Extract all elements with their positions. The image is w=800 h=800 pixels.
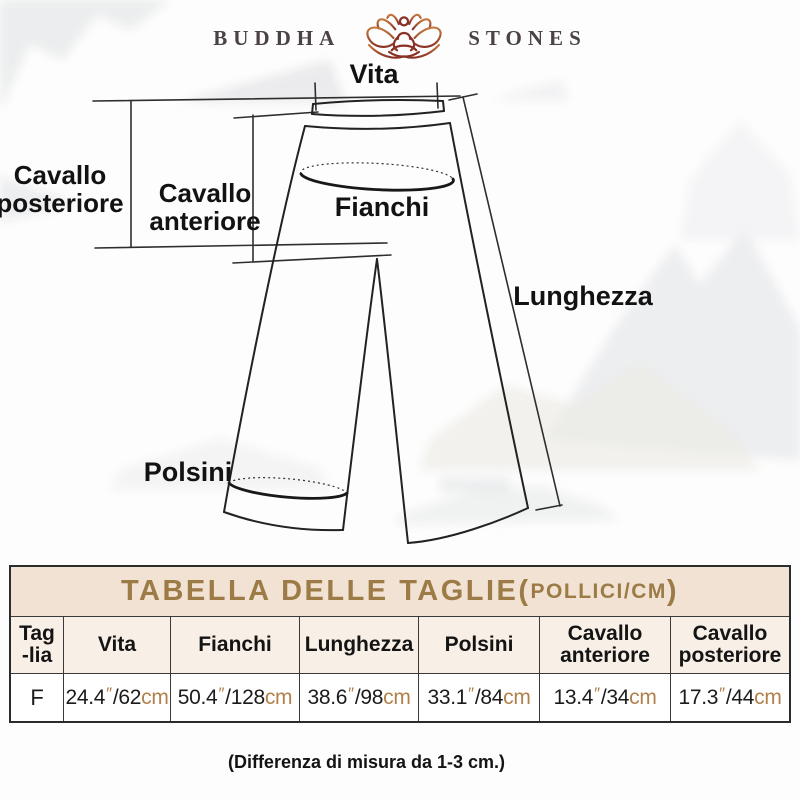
cm-unit: cm [503, 686, 530, 710]
cavallo-anteriore-label: Cavallo anteriore [130, 180, 280, 235]
size-table: TABELLA DELLE TAGLIE(POLLICI/CM) Tag -li… [9, 565, 791, 723]
measure-cell-fianchi: 50.4″/128cm [170, 674, 299, 721]
title-paren-open: ( [518, 575, 530, 608]
size-table-header-row: Tag -liaVitaFianchiLunghezzaPolsiniCaval… [11, 617, 789, 674]
cm-unit: cm [265, 686, 292, 710]
measure-cell-cavallo-posteriore: 17.3″/44cm [670, 674, 789, 721]
measure-cell-lunghezza: 38.6″/98cm [299, 674, 418, 721]
fianchi-label: Fianchi [322, 193, 442, 222]
inch-mark: ″ [106, 684, 112, 704]
size-table-unit-text: POLLICI/CM [531, 580, 667, 604]
measurement-difference-note: (Differenza di misura da 1-3 cm.) [0, 752, 733, 773]
column-header-lunghezza: Lunghezza [299, 617, 418, 673]
fianchi-ellipse-dotted [301, 163, 453, 179]
cm-unit: cm [383, 686, 410, 710]
inch-mark: ″ [719, 684, 725, 704]
column-header-cavallo-anteriore: Cavallo anteriore [539, 617, 670, 673]
size-table-title: TABELLA DELLE TAGLIE(POLLICI/CM) [11, 567, 789, 617]
cm-unit: cm [141, 686, 168, 710]
measure-cell-vita: 24.4″/62cm [63, 674, 170, 721]
inch-mark: ″ [594, 684, 600, 704]
pants-outline [224, 100, 528, 543]
size-table-title-text: TABELLA DELLE TAGLIE [121, 575, 518, 608]
cm-unit: cm [629, 686, 656, 710]
title-paren-close: ) [667, 575, 679, 608]
size-cell: F [11, 674, 63, 721]
column-header-cavallo-posteriore: Cavallo posteriore [670, 617, 789, 673]
size-guide-page: BUDDHA [0, 0, 800, 800]
column-header-fianchi: Fianchi [170, 617, 299, 673]
cm-unit: cm [754, 686, 781, 710]
vita-label: Vita [314, 60, 434, 89]
inch-mark: ″ [468, 684, 474, 704]
column-header-polsini: Polsini [418, 617, 539, 673]
measure-cell-cavallo-anteriore: 13.4″/34cm [539, 674, 670, 721]
inch-mark: ″ [218, 684, 224, 704]
column-header-taglia: Tag -lia [11, 617, 63, 673]
inch-mark: ″ [348, 684, 354, 704]
polsini-label: Polsini [118, 458, 258, 487]
size-table-data-row: F24.4″/62cm50.4″/128cm38.6″/98cm33.1″/84… [11, 674, 789, 721]
lunghezza-label: Lunghezza [513, 282, 653, 311]
column-header-vita: Vita [63, 617, 170, 673]
measure-cell-polsini: 33.1″/84cm [418, 674, 539, 721]
fianchi-ellipse-solid [301, 174, 453, 190]
cavallo-posteriore-label: Cavallo posteriore [0, 162, 135, 217]
